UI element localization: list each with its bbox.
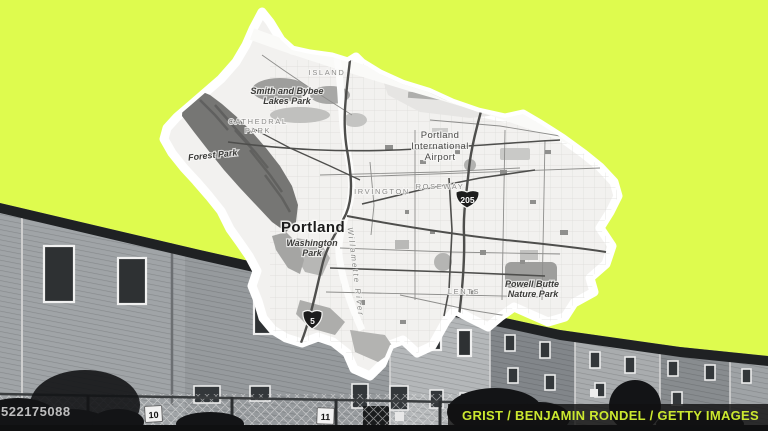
label-airport-1: Portland [421, 130, 460, 141]
label-powell-butte-1: Powell Butte [505, 279, 559, 289]
label-powell-butte-2: Nature Park [508, 289, 560, 299]
label-cathedral-2: PARK [245, 126, 271, 135]
label-washington-park-2: Park [302, 248, 323, 258]
portland-map: 205 5 ISLAND Smith and Bybee Lakes Park … [0, 0, 768, 431]
stock-photo-watermark: 522175088 [1, 404, 71, 419]
label-washington-park-1: Washington [286, 238, 338, 248]
shield-205-label: 205 [460, 195, 474, 205]
label-smith-bybee-2: Lakes Park [263, 96, 312, 106]
label-cathedral-1: CATHEDRAL [228, 117, 287, 126]
label-smith-bybee-1: Smith and Bybee [250, 86, 323, 96]
photo-credit: GRIST / BENJAMIN RONDEL / GETTY IMAGES [448, 404, 768, 427]
label-airport-2: International [411, 141, 469, 152]
shield-5-label: 5 [310, 316, 315, 326]
label-lents: LENTS [448, 287, 480, 296]
label-airport-3: Airport [425, 152, 456, 163]
label-irvington: IRVINGTON [354, 187, 410, 196]
label-portland: Portland [281, 219, 345, 236]
label-roseway: ROSEWAY [416, 182, 465, 191]
hero-graphic: 10 11 [0, 0, 768, 431]
label-island: ISLAND [309, 68, 346, 77]
